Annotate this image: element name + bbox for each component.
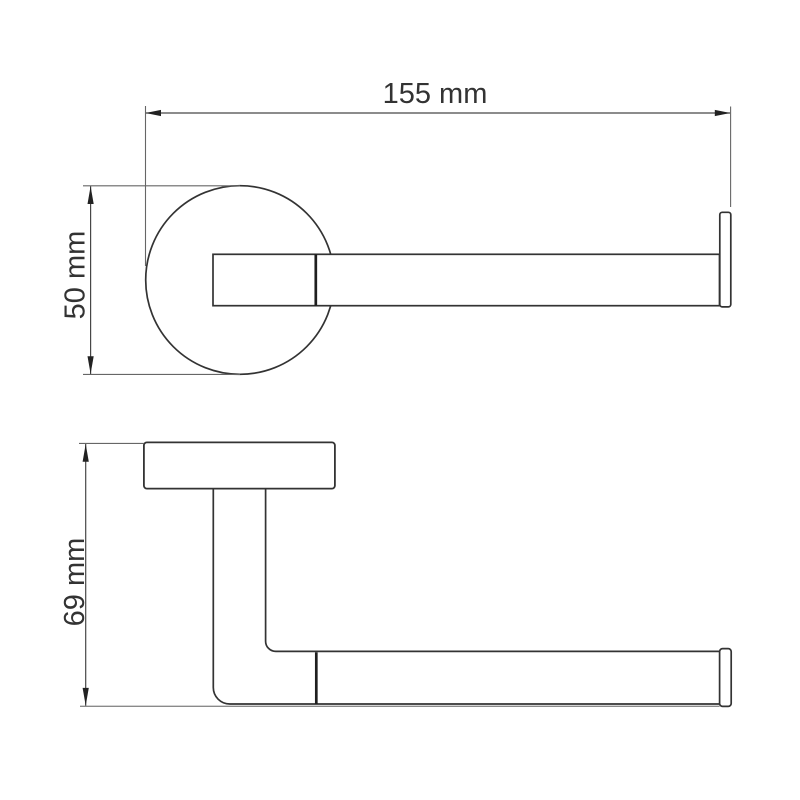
svg-text:69 mm: 69 mm — [59, 538, 91, 627]
svg-text:155 mm: 155 mm — [383, 78, 488, 110]
svg-text:50 mm: 50 mm — [59, 231, 91, 320]
